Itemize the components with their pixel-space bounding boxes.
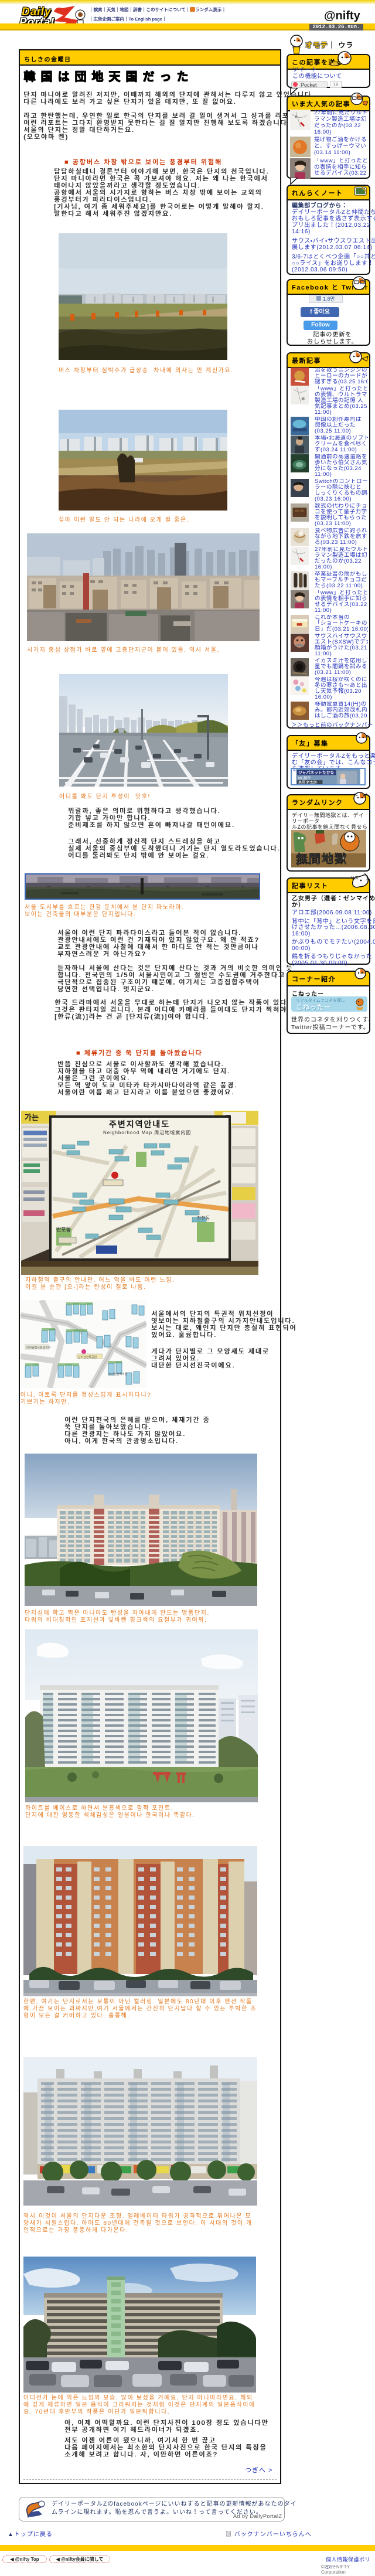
svg-text:장천동: 장천동 [197, 1215, 210, 1221]
svg-text:Neighborhood Map 周辺地域案内図: Neighborhood Map 周辺地域案内図 [103, 1129, 191, 1135]
svg-text:ジャパネットたかた: ジャパネットたかた [298, 770, 335, 775]
svg-text:혼산신전목의장: 혼산신전목의장 [108, 1372, 128, 1376]
svg-text:MC紹介: MC紹介 [298, 775, 311, 780]
svg-text:リス: リス [350, 876, 359, 880]
svg-text:가는: 가는 [25, 1113, 39, 1122]
svg-text:無間地獄: 無間地獄 [296, 852, 347, 866]
svg-text:안전종합사회복지관: 안전종합사회복지관 [26, 1346, 51, 1350]
svg-text:반포동: 반포동 [56, 1226, 71, 1233]
svg-text:단지산전목공원: 단지산전목공원 [78, 1355, 97, 1359]
svg-text:蔦房 新太朗: 蔦房 新太朗 [298, 780, 317, 785]
svg-text:주변지역안내도: 주변지역안내도 [109, 1119, 170, 1129]
